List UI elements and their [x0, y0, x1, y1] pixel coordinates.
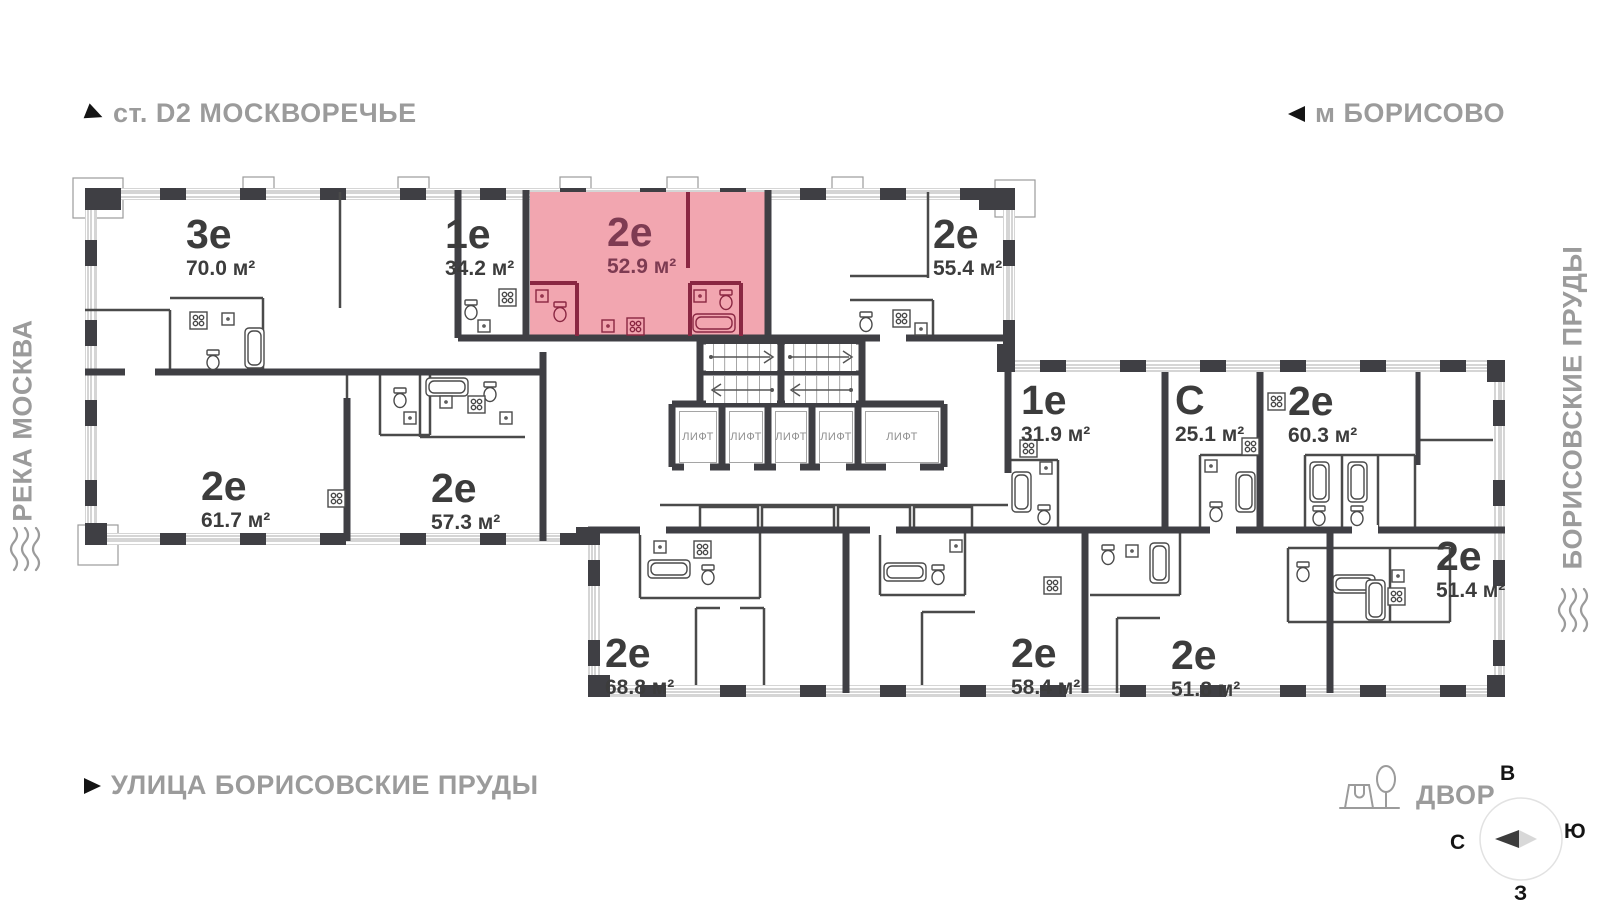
compass-bottom: З — [1514, 882, 1527, 906]
unit-type: 2е — [1288, 381, 1357, 422]
unit-type: 2е — [431, 468, 500, 509]
unit-area: 51.8 м² — [1171, 679, 1240, 700]
landmark-metro-label: м БОРИСОВО — [1315, 98, 1505, 129]
compass-right: Ю — [1564, 820, 1586, 844]
unit-type: 2е — [1171, 635, 1240, 676]
unit-type: 2е — [201, 466, 270, 507]
yard-icon — [1338, 758, 1402, 812]
compass-top: В — [1500, 762, 1515, 786]
elevator: ЛИФТ — [775, 411, 807, 463]
unit-area: 60.3 м² — [1288, 425, 1357, 446]
direction-arrow-icon — [84, 778, 101, 794]
unit-type: 2е — [1011, 633, 1080, 674]
landmark-ponds-label: БОРИСОВСКИЕ ПРУДЫ — [1558, 238, 1589, 578]
unit-area: 61.7 м² — [201, 510, 270, 531]
unit-label[interactable]: С25.1 м² — [1175, 380, 1244, 445]
landmark-street: УЛИЦА БОРИСОВСКИЕ ПРУДЫ — [84, 770, 539, 801]
unit-type: 1е — [1021, 380, 1090, 421]
unit-label[interactable]: 2е60.3 м² — [1288, 381, 1357, 446]
elevator: ЛИФТ — [729, 411, 763, 463]
unit-area: 31.9 м² — [1021, 424, 1090, 445]
direction-arrow-icon — [84, 103, 106, 124]
landmark-station: ст. D2 МОСКВОРЕЧЬЕ — [86, 98, 417, 129]
unit-area: 58.4 м² — [1011, 677, 1080, 698]
elevator: ЛИФТ — [679, 411, 717, 463]
compass-left: С — [1450, 831, 1465, 855]
unit-area: 68.8 м² — [605, 677, 674, 698]
compass-icon — [1478, 795, 1566, 883]
unit-area: 55.4 м² — [933, 258, 1002, 279]
unit-area: 25.1 м² — [1175, 424, 1244, 445]
unit-area: 70.0 м² — [186, 258, 255, 279]
unit-label[interactable]: 2е57.3 м² — [431, 468, 500, 533]
unit-area: 52.9 м² — [607, 256, 676, 277]
waves-icon — [8, 522, 44, 586]
landmark-station-label: ст. D2 МОСКВОРЕЧЬЕ — [113, 98, 417, 129]
unit-area: 57.3 м² — [431, 512, 500, 533]
landmark-street-label: УЛИЦА БОРИСОВСКИЕ ПРУДЫ — [111, 770, 539, 801]
waves-icon — [1556, 583, 1592, 647]
unit-type: 2е — [605, 633, 674, 674]
landmark-metro: м БОРИСОВО — [1288, 98, 1505, 129]
unit-label[interactable]: 2е61.7 м² — [201, 466, 270, 531]
unit-label[interactable]: 3е70.0 м² — [186, 214, 255, 279]
unit-type: 2е — [607, 212, 676, 253]
unit-label[interactable]: 1е34.2 м² — [445, 214, 514, 279]
unit-label[interactable]: 2е68.8 м² — [605, 633, 674, 698]
unit-type: С — [1175, 380, 1244, 421]
unit-label[interactable]: 2е58.4 м² — [1011, 633, 1080, 698]
direction-arrow-icon — [1288, 106, 1305, 122]
elevator: ЛИФТ — [819, 411, 853, 463]
unit-label[interactable]: 2е52.9 м² — [607, 212, 676, 277]
unit-label[interactable]: 2е51.8 м² — [1171, 635, 1240, 700]
landmark-ponds: БОРИСОВСКИЕ ПРУДЫ — [1558, 238, 1589, 578]
unit-type: 2е — [933, 214, 1002, 255]
unit-area: 34.2 м² — [445, 258, 514, 279]
unit-label[interactable]: 2е51.4 м² — [1436, 536, 1505, 601]
unit-type: 2е — [1436, 536, 1505, 577]
unit-label[interactable]: 1е31.9 м² — [1021, 380, 1090, 445]
elevator: ЛИФТ — [865, 411, 939, 463]
floor-plan-page: ст. D2 МОСКВОРЕЧЬЕ м БОРИСОВО РЕКА МОСКВ… — [0, 0, 1600, 920]
unit-label[interactable]: 2е55.4 м² — [933, 214, 1002, 279]
unit-area: 51.4 м² — [1436, 580, 1505, 601]
unit-type: 3е — [186, 214, 255, 255]
unit-type: 1е — [445, 214, 514, 255]
